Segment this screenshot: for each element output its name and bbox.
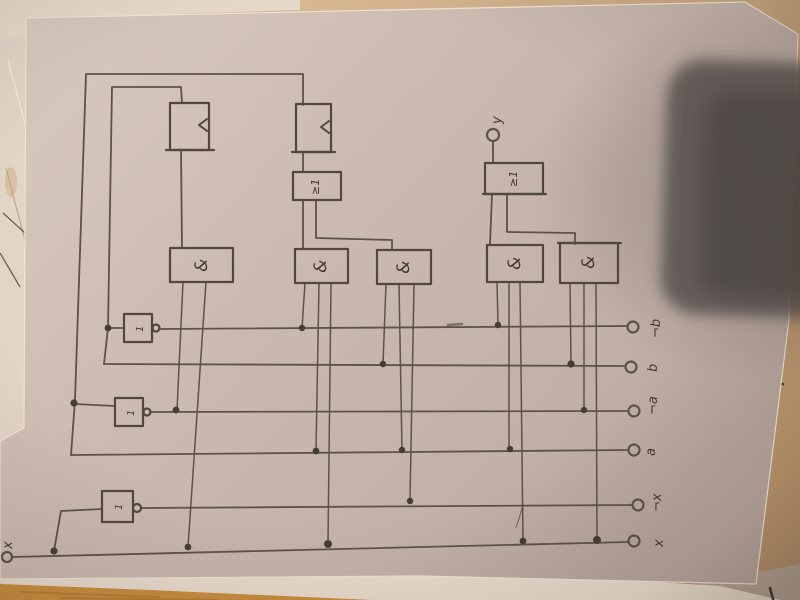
photo-vignette xyxy=(0,0,800,600)
scene-canvas: & & & & & ≥1 ≥1 1 1 1 ¬b b ¬a a ¬x x x y xyxy=(0,0,800,600)
photo-of-hand-drawn-logic-circuit: & & & & & ≥1 ≥1 1 1 1 ¬b b ¬a a ¬x x x y xyxy=(0,0,800,600)
